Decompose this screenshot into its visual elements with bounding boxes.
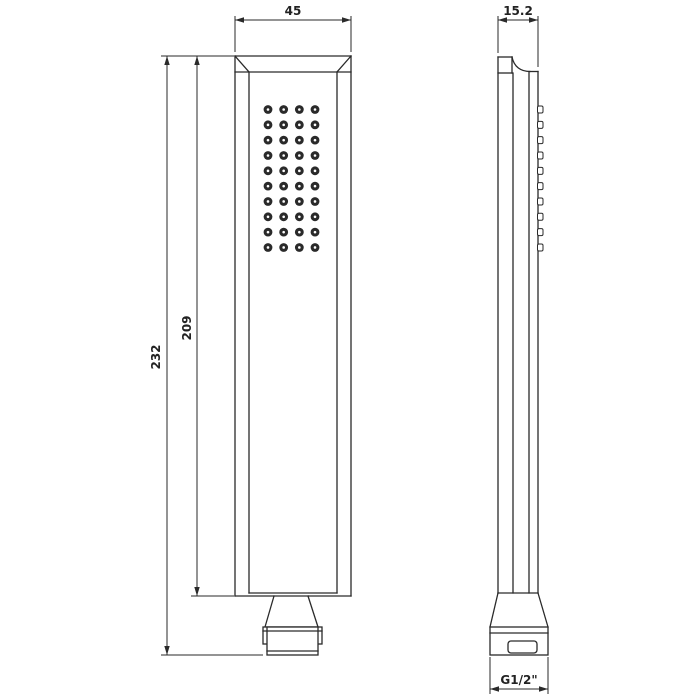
width-dimension-label: 45 (285, 4, 302, 18)
side-nozzle-bump (538, 137, 544, 144)
nozzle-dot-center (282, 170, 285, 173)
nozzle-dot-center (282, 108, 285, 111)
front-neck-right-slant (308, 596, 318, 627)
arrow-icon (539, 686, 548, 691)
technical-drawing-canvas: 45 15.2 232 209 G1/2" (0, 0, 700, 700)
thread-dimension-label: G1/2" (500, 673, 537, 687)
nozzle-dot-center (314, 108, 317, 111)
nozzle-dot-center (314, 185, 317, 188)
side-neck-right-slant (538, 593, 548, 627)
arrow-icon (194, 587, 199, 596)
nozzle-dot-center (314, 170, 317, 173)
side-view (490, 57, 548, 655)
side-nozzle-bump (538, 167, 544, 174)
nozzle-dot-center (298, 246, 301, 249)
nozzle-dot-center (267, 216, 270, 219)
arrow-icon (194, 56, 199, 65)
nozzle-dot-center (267, 170, 270, 173)
nozzle-dot-center (298, 185, 301, 188)
arrow-icon (164, 646, 169, 655)
side-nozzle-bump (538, 152, 544, 159)
nozzle-dot-center (282, 139, 285, 142)
nozzle-dot-center (298, 231, 301, 234)
nozzle-grid (264, 105, 320, 252)
arrow-icon (235, 17, 244, 22)
nozzle-dot-center (267, 139, 270, 142)
nozzle-dot-center (282, 246, 285, 249)
side-neck-left-slant (490, 593, 498, 627)
nozzle-dot-center (298, 124, 301, 127)
arrow-icon (490, 686, 499, 691)
nozzle-dot-center (282, 200, 285, 203)
nozzle-dot-center (298, 139, 301, 142)
nozzle-dot-center (298, 216, 301, 219)
front-cap-left-bevel (235, 56, 249, 72)
nozzle-dot-center (314, 216, 317, 219)
nozzle-dot-center (314, 154, 317, 157)
nozzle-dot-center (314, 246, 317, 249)
nozzle-dot-center (298, 154, 301, 157)
dimension-labels: 45 15.2 232 209 G1/2" (149, 4, 538, 687)
nozzle-dot-center (314, 124, 317, 127)
body-height-dimension-label: 209 (180, 315, 194, 340)
arrow-icon (164, 56, 169, 65)
nozzle-dot-center (298, 108, 301, 111)
nozzle-dot-center (282, 231, 285, 234)
front-neck-left-slant (265, 596, 274, 627)
nozzle-dot-center (267, 108, 270, 111)
technical-drawing-page: 45 15.2 232 209 G1/2" (0, 0, 700, 700)
nozzle-dot-center (267, 200, 270, 203)
nozzle-dot-center (267, 124, 270, 127)
front-view (235, 56, 351, 655)
nozzle-dot-center (267, 231, 270, 234)
side-cap-curve (512, 57, 530, 72)
arrow-icon (342, 17, 351, 22)
front-cap-right-bevel (337, 56, 351, 72)
depth-dimension-label: 15.2 (503, 4, 533, 18)
nozzle-dot-center (282, 154, 285, 157)
arrow-icon (498, 17, 507, 22)
nozzle-dot-center (282, 185, 285, 188)
arrow-icon (529, 17, 538, 22)
side-nozzle-bump (538, 213, 544, 220)
nozzle-dot-center (267, 154, 270, 157)
nozzle-dot-center (314, 231, 317, 234)
dimension-arrowheads (164, 17, 548, 691)
nozzle-dot-center (282, 216, 285, 219)
side-nozzle-bump (538, 244, 544, 251)
side-nut-inlet-detail (508, 641, 537, 653)
dimension-lines (161, 16, 548, 694)
side-nozzle-bump (538, 183, 544, 190)
side-nozzle-bump (538, 106, 544, 113)
nozzle-dot-center (267, 185, 270, 188)
side-nozzle-bump (538, 121, 544, 128)
nozzle-dot-center (267, 246, 270, 249)
nozzle-dot-center (314, 139, 317, 142)
nozzle-dot-center (298, 200, 301, 203)
nozzle-dot-center (282, 124, 285, 127)
nozzle-dot-center (298, 170, 301, 173)
side-nozzle-bump (538, 229, 544, 236)
overall-height-dimension-label: 232 (149, 344, 163, 369)
side-nozzle-bump (538, 198, 544, 205)
nozzle-dot-center (314, 200, 317, 203)
